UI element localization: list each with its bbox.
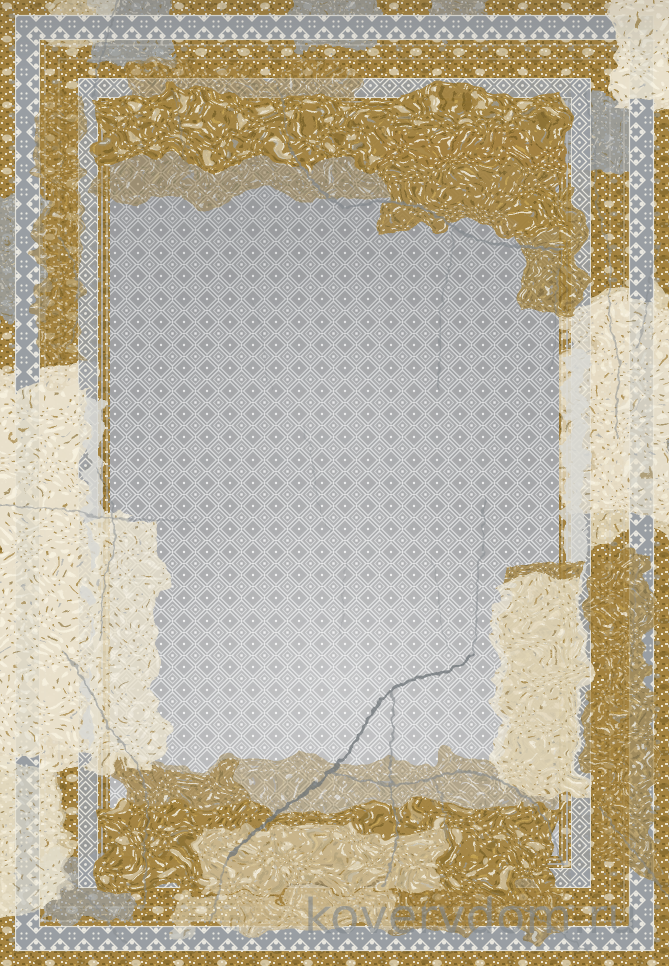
photo-shading bbox=[0, 0, 669, 966]
rug-image bbox=[0, 0, 669, 966]
rug-photo: kovervdom.ru bbox=[0, 0, 669, 966]
